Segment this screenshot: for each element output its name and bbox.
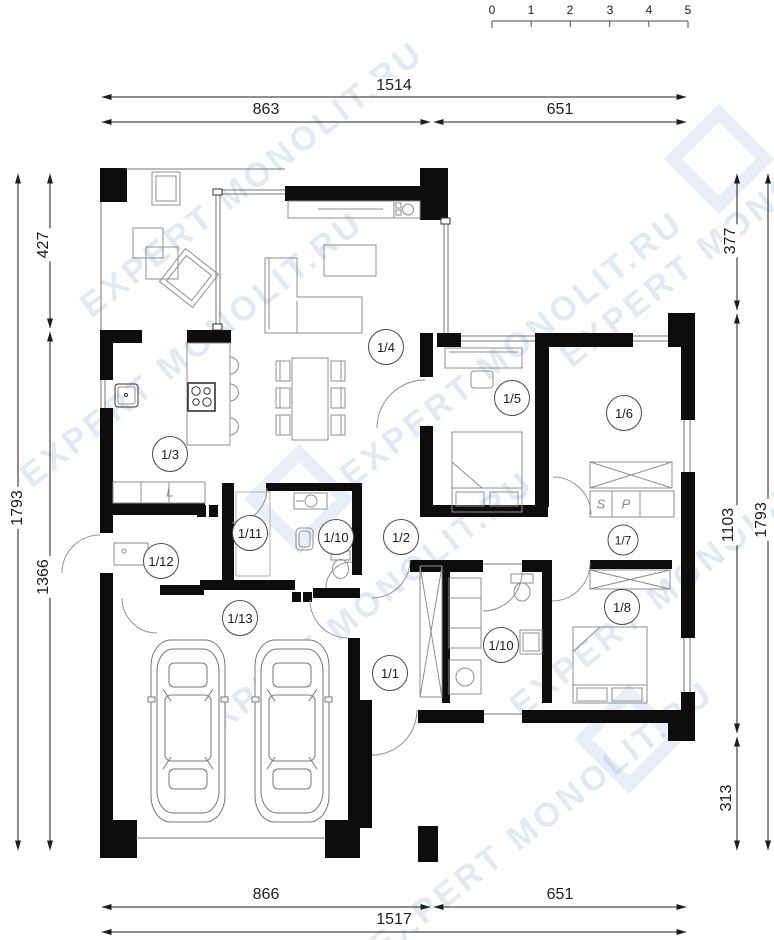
closet-letter-p: P	[622, 497, 631, 512]
dim-left-outer: 1793	[9, 487, 27, 529]
kitchen-letter-l: L	[166, 485, 173, 500]
dim-right-middle: 1103	[720, 505, 738, 545]
terrace-furniture	[133, 172, 218, 307]
bedroom-1-8-furniture	[573, 627, 647, 703]
car	[252, 640, 332, 822]
closet-letter-s: S	[597, 497, 606, 512]
room-label-1-12: 1/12	[143, 543, 179, 579]
room-label-1-3: 1/3	[152, 436, 188, 472]
room-label-1-1: 1/1	[372, 655, 408, 691]
room-label-1-10-upper: 1/10	[318, 519, 354, 555]
room-label-1-8: 1/8	[604, 589, 640, 625]
room-label-1-5: 1/5	[494, 380, 530, 416]
room-label-1-6: 1/6	[606, 395, 642, 431]
bedroom-1-5-furniture	[445, 348, 522, 512]
dim-top-total: 1514	[373, 77, 415, 95]
scale-bar-line	[492, 21, 688, 28]
room-label-1-7: 1/7	[608, 525, 639, 556]
scale-tick-5: 5	[685, 3, 692, 17]
dim-left-upper: 427	[35, 229, 53, 262]
dim-right-lower: 313	[718, 782, 736, 815]
living-room-furniture	[265, 201, 420, 333]
floor-plan-canvas: EXPERT MONOLIT.RU EXPERT MONOLIT.RU EXPE…	[0, 0, 774, 940]
scale-tick-0: 0	[489, 3, 496, 17]
dim-bottom-total: 1517	[373, 911, 415, 929]
room-label-1-13: 1/13	[222, 600, 258, 636]
scale-tick-2: 2	[567, 3, 574, 17]
dim-left-lower: 1366	[35, 556, 53, 598]
room-label-1-10-lower: 1/10	[483, 627, 519, 663]
plan-drawing	[0, 0, 774, 940]
kitchen-furniture	[113, 343, 239, 503]
furniture	[113, 172, 674, 822]
room-label-1-11: 1/11	[232, 515, 268, 551]
scale-tick-3: 3	[607, 3, 614, 17]
room-label-1-2: 1/2	[383, 519, 419, 555]
scale-tick-4: 4	[646, 3, 653, 17]
dim-bottom-right: 651	[544, 886, 577, 904]
dim-bottom-left: 866	[250, 886, 283, 904]
dim-right-upper: 377	[722, 225, 740, 258]
dim-top-left: 863	[250, 101, 283, 119]
scale-tick-1: 1	[528, 3, 535, 17]
car	[148, 640, 228, 822]
dim-right-outer: 1793	[753, 499, 771, 541]
dim-top-right: 651	[544, 101, 577, 119]
dining-set	[276, 358, 345, 440]
room-label-1-4: 1/4	[368, 329, 404, 365]
